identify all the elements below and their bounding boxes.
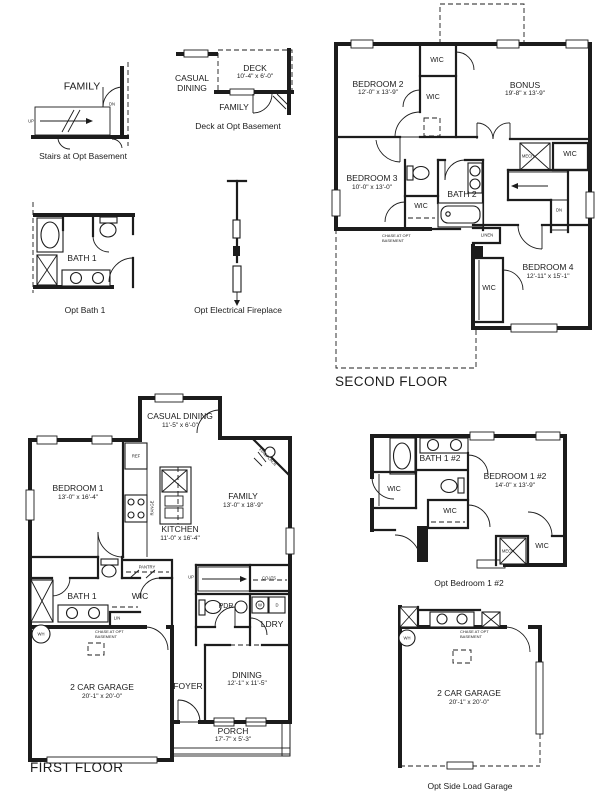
dryer-label: D xyxy=(275,602,278,607)
room-label-casual-dining: CASUAL DINING xyxy=(147,411,213,421)
chase-note: CHASE AT OPT BASEMENT xyxy=(95,629,124,639)
mech-label: MECH xyxy=(502,548,514,553)
door-arc-icon xyxy=(468,505,490,527)
dn-label: DN xyxy=(556,207,562,212)
door-arc-icon xyxy=(395,535,420,560)
door-arc-icon xyxy=(403,90,420,107)
pantry-label: PANTRY xyxy=(139,564,156,569)
door-arc-icon xyxy=(98,532,123,557)
chase xyxy=(417,526,428,562)
window-icon xyxy=(511,324,557,332)
wic-label: WIC xyxy=(430,57,444,65)
linen-label: LINEN xyxy=(481,232,493,237)
window-icon xyxy=(155,394,183,402)
room-dim-family: 13'-0" x 18'-9" xyxy=(223,502,263,510)
window-icon xyxy=(92,436,112,444)
door-arc-icon xyxy=(528,512,552,536)
room-label-foyer: FOYER xyxy=(173,681,202,691)
window-icon xyxy=(351,40,373,48)
wh-label: WH xyxy=(404,635,411,640)
room-label-bath-1-2: BATH 1 #2 xyxy=(420,453,461,463)
up-arrow-icon xyxy=(86,118,93,124)
lin-label: LIN xyxy=(114,615,121,620)
caption-opt-fireplace: Opt Electrical Fireplace xyxy=(194,305,282,315)
window-icon xyxy=(536,432,560,440)
sink-icon xyxy=(420,438,468,453)
sink-icon xyxy=(235,601,247,613)
wic-label: WIC xyxy=(132,591,149,601)
room-label-kitchen: KITCHEN xyxy=(161,524,198,534)
sink-icon xyxy=(62,270,110,286)
room-label-bedroom-3: BEDROOM 3 xyxy=(346,173,397,183)
caption-stairs-basement: Stairs at Opt Basement xyxy=(39,151,127,161)
room-dim-dining: 12'-1" x 11'-5" xyxy=(227,680,267,688)
door-arc-icon xyxy=(518,225,542,249)
room-label-family: FAMILY xyxy=(228,491,258,501)
door-arc-icon xyxy=(477,123,493,139)
room-label-bonus: BONUS xyxy=(510,80,540,90)
room-dim-bedroom-3: 10'-0" x 13'-0" xyxy=(352,184,392,192)
room-dim-porch: 17'-7" x 5'-3" xyxy=(215,736,251,744)
room-label-porch: PORCH xyxy=(218,726,249,736)
window-icon xyxy=(470,432,494,440)
door-arc-icon xyxy=(445,160,465,180)
window-icon xyxy=(447,762,473,769)
tub-icon xyxy=(37,218,63,252)
linen-closet-icon xyxy=(400,607,418,627)
room-label-family: FAMILY xyxy=(64,81,101,94)
door-arc-icon xyxy=(395,112,420,137)
room-label-casual-dining: CASUAL DINING xyxy=(175,73,209,93)
room-dim-bedroom-2: 12'-0" x 13'-9" xyxy=(358,89,398,97)
range-label: RANGE xyxy=(149,501,154,516)
fireplace-insert-icon xyxy=(233,220,240,238)
room-dim-garage: 20'-1" x 20'-0" xyxy=(82,693,122,701)
linen-closet-icon xyxy=(37,255,57,285)
door-arc-icon xyxy=(145,627,168,650)
window-icon xyxy=(37,436,57,444)
pdr-label: PDR xyxy=(219,603,234,611)
wic-label: WIC xyxy=(426,94,440,102)
shower-icon xyxy=(31,580,53,622)
toilet-icon xyxy=(101,559,118,577)
wic-label: WIC xyxy=(482,285,496,293)
window-icon xyxy=(184,50,208,57)
room-dim-garage: 20'-1" x 20'-0" xyxy=(449,699,489,707)
window-icon xyxy=(497,40,519,48)
room-label-garage: 2 CAR GARAGE xyxy=(437,688,501,698)
tub-icon xyxy=(438,203,483,227)
wic-label: WIC xyxy=(563,151,577,159)
room-label-bedroom-2: BEDROOM 2 xyxy=(352,79,403,89)
ref-label: REF xyxy=(132,453,140,458)
room-dim-kitchen: 11'-0" x 16'-4" xyxy=(160,535,200,543)
wic-label: WIC xyxy=(535,543,549,551)
room-dim-bedroom-4: 12'-11" x 15'-1" xyxy=(526,273,569,281)
door-arc-icon xyxy=(109,258,133,282)
window-icon xyxy=(26,490,34,520)
room-label-bedroom-1: BEDROOM 1 xyxy=(52,483,103,493)
room-dim-bonus: 19'-8" x 13'-9" xyxy=(505,90,545,98)
floor-plan-sheet: FAMILY UP DN Stairs at Opt Basement CASU… xyxy=(0,0,607,802)
room-label-deck: DECK xyxy=(243,63,267,73)
coats-label: COATS xyxy=(262,575,276,580)
window-icon xyxy=(230,89,254,95)
room-dim-casual-dining: 11'-5" x 6'-0" xyxy=(162,422,198,430)
second-floor-title: SECOND FLOOR xyxy=(335,374,448,390)
window-icon xyxy=(332,190,340,216)
ldry-label: LDRY xyxy=(261,619,284,629)
chase xyxy=(473,246,483,258)
side-garage-door-icon xyxy=(536,662,543,734)
room-label-family: FAMILY xyxy=(219,102,249,112)
room-label-dining: DINING xyxy=(232,670,262,680)
chase-note: CHASE AT OPT BASEMENT xyxy=(382,233,411,243)
room-dim-deck: 10'-4" x 6'-0" xyxy=(237,73,273,81)
wic-label: WIC xyxy=(414,203,428,211)
door-arc-icon xyxy=(503,270,523,290)
door-arc-icon xyxy=(505,627,530,652)
opt-electrical-fireplace-plan xyxy=(228,181,246,306)
caption-opt-side-load-garage: Opt Side Load Garage xyxy=(427,781,512,791)
first-floor-title: FIRST FLOOR xyxy=(30,760,123,776)
door-arc-icon xyxy=(178,700,200,722)
room-label-bath-1: BATH 1 xyxy=(67,591,96,601)
mech-label: MECH xyxy=(522,153,534,158)
door-arc-icon xyxy=(493,123,510,139)
room-label-bedroom-4: BEDROOM 4 xyxy=(522,262,573,272)
first-floor-plan xyxy=(26,394,294,763)
room-label-garage: 2 CAR GARAGE xyxy=(70,682,134,692)
wic-label: WIC xyxy=(387,486,401,494)
room-dim-bedroom-1: 13'-0" x 16'-4" xyxy=(58,494,98,502)
up-label: UP xyxy=(28,118,34,123)
wic-label: WIC xyxy=(443,508,457,516)
door-arc-icon xyxy=(253,94,272,113)
toilet-icon xyxy=(407,166,429,180)
caption-deck-basement: Deck at Opt Basement xyxy=(195,121,281,131)
sink-icon xyxy=(430,612,474,627)
room-dim-bedroom-1-2: 14'-0" x 13'-9" xyxy=(495,482,535,490)
caption-opt-bath-1: Opt Bath 1 xyxy=(65,305,106,315)
toilet-icon xyxy=(441,478,464,493)
room-label-bath-1: BATH 1 xyxy=(67,253,96,263)
window-icon xyxy=(586,192,594,218)
up-arrow-icon xyxy=(240,576,247,582)
washer-label: W xyxy=(258,602,262,607)
room-label-bedroom-1-2: BEDROOM 1 #2 xyxy=(484,471,547,481)
door-arc-icon xyxy=(376,140,400,162)
caption-opt-bedroom-1-2: Opt Bedroom 1 #2 xyxy=(434,578,503,588)
tub-icon xyxy=(390,438,415,474)
room-label-bath-2: BATH 2 xyxy=(447,189,476,199)
door-arc-icon xyxy=(93,236,109,252)
sink-icon xyxy=(58,605,108,622)
door-arc-icon xyxy=(385,202,405,222)
dn-label: DN xyxy=(109,101,115,106)
wh-label: WH xyxy=(38,631,45,636)
window-icon xyxy=(566,40,588,48)
opt-bath-1-plan xyxy=(33,202,133,293)
toilet-icon xyxy=(100,217,117,237)
up-label: UP xyxy=(188,574,194,579)
kitchen-island-icon xyxy=(160,467,191,524)
shower-icon xyxy=(482,612,500,627)
dn-arrow-icon xyxy=(511,183,518,189)
range-icon xyxy=(125,495,147,522)
door-arc-icon xyxy=(456,52,474,70)
chase-note: CHASE AT OPT BASEMENT xyxy=(460,629,489,639)
window-icon xyxy=(286,528,294,554)
